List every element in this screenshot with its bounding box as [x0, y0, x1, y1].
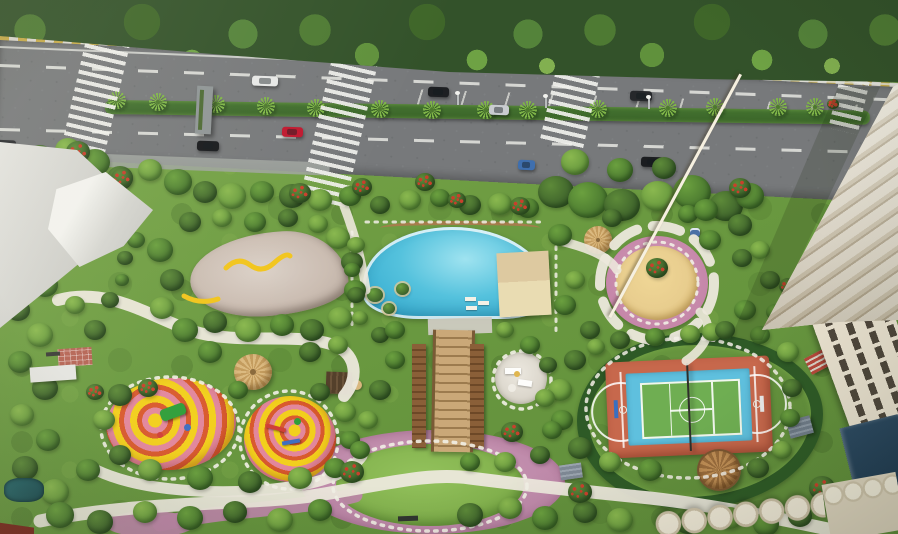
- tree: [554, 295, 576, 315]
- tree: [133, 501, 157, 523]
- tree: [565, 271, 585, 289]
- tree: [496, 322, 514, 338]
- tree: [193, 181, 217, 203]
- tree: [580, 321, 600, 339]
- vegetation-layer: [0, 0, 898, 534]
- tree: [76, 459, 100, 481]
- tree: [610, 331, 630, 349]
- tree: [728, 214, 752, 236]
- tree: [179, 212, 201, 232]
- tree: [109, 445, 131, 465]
- tree: [36, 429, 60, 451]
- flowering-tree: [827, 99, 839, 110]
- tree: [645, 328, 665, 346]
- tree: [308, 189, 332, 211]
- tree: [328, 336, 348, 354]
- tree: [41, 479, 69, 504]
- tree: [777, 342, 799, 362]
- tree: [308, 215, 328, 233]
- tree: [599, 452, 621, 472]
- tree: [568, 437, 592, 459]
- aerial-render-scene: [0, 0, 898, 534]
- tree: [228, 381, 248, 399]
- tree: [494, 452, 516, 472]
- tree: [385, 351, 405, 369]
- tree: [587, 339, 605, 355]
- tree: [150, 297, 174, 319]
- tree: [138, 459, 162, 481]
- water-feature: [4, 478, 44, 502]
- tree: [694, 199, 718, 221]
- tree: [8, 351, 32, 373]
- tree: [235, 318, 261, 341]
- flowering-tree: [510, 197, 530, 215]
- tree: [358, 411, 378, 429]
- tree: [561, 149, 589, 174]
- white-pergola: [30, 364, 77, 382]
- tree: [370, 196, 390, 214]
- tree: [652, 157, 676, 179]
- tree: [87, 510, 113, 533]
- tree: [46, 502, 74, 527]
- tree: [430, 189, 450, 207]
- tree: [238, 471, 262, 493]
- tree: [218, 183, 246, 208]
- tree: [498, 497, 522, 519]
- tree: [568, 182, 608, 218]
- tree: [548, 224, 572, 246]
- tree: [680, 325, 700, 343]
- tree: [344, 263, 360, 277]
- flowering-tree: [568, 481, 592, 503]
- tree: [308, 499, 332, 521]
- tree: [160, 269, 184, 291]
- tree: [532, 506, 558, 529]
- tree: [278, 209, 298, 227]
- tree: [267, 508, 293, 531]
- tree: [369, 380, 391, 400]
- flowering-tree: [352, 178, 372, 196]
- flowering-tree: [415, 173, 435, 191]
- tree: [747, 458, 769, 478]
- feature-wall: [195, 86, 213, 135]
- tree: [101, 292, 119, 308]
- tree: [300, 319, 324, 341]
- tree: [334, 402, 356, 422]
- tree: [535, 389, 555, 407]
- tree: [715, 321, 735, 339]
- tree: [84, 320, 106, 340]
- tree: [542, 421, 562, 439]
- flowering-tree: [729, 178, 751, 198]
- tree: [115, 274, 129, 287]
- tree: [108, 384, 132, 406]
- flowering-tree: [501, 422, 523, 442]
- tree: [638, 459, 662, 481]
- tree: [385, 321, 405, 339]
- tree: [520, 336, 540, 354]
- tree: [187, 466, 213, 489]
- tree: [760, 271, 780, 289]
- tree: [573, 501, 597, 523]
- tree: [147, 238, 173, 261]
- tree: [488, 193, 512, 215]
- tree: [203, 311, 227, 333]
- flowering-tree: [448, 192, 466, 208]
- tree: [164, 169, 192, 194]
- tree: [172, 318, 198, 341]
- tree: [607, 158, 633, 181]
- tree: [350, 441, 370, 459]
- tree: [399, 190, 421, 210]
- tree: [530, 446, 550, 464]
- tree: [12, 456, 38, 479]
- tree: [288, 467, 312, 489]
- tree: [299, 342, 321, 362]
- tree: [460, 453, 480, 471]
- tree: [699, 230, 721, 250]
- tree: [564, 350, 586, 370]
- tree: [782, 379, 802, 397]
- tree: [223, 501, 247, 523]
- tree: [328, 307, 352, 329]
- tree: [457, 503, 483, 526]
- tree: [602, 209, 622, 227]
- tree: [607, 508, 633, 531]
- flowering-tree: [289, 183, 311, 203]
- tree: [347, 237, 365, 253]
- tree: [310, 383, 330, 401]
- tree: [138, 159, 162, 181]
- tree: [177, 506, 203, 529]
- tree: [270, 314, 294, 336]
- tree: [65, 296, 85, 314]
- flowering-tree: [86, 384, 104, 400]
- tree: [27, 323, 53, 346]
- tree: [772, 441, 792, 459]
- tree: [539, 357, 557, 373]
- tree: [10, 404, 34, 426]
- tree: [212, 209, 232, 227]
- tree: [780, 409, 800, 427]
- tree: [250, 181, 274, 203]
- tree: [732, 249, 752, 267]
- tree: [244, 212, 266, 232]
- flowering-tree: [646, 258, 668, 278]
- tree: [750, 241, 770, 259]
- flowering-tree: [138, 379, 158, 397]
- flowering-tree: [340, 461, 364, 483]
- tree: [117, 251, 133, 265]
- tree: [198, 341, 222, 363]
- tree: [93, 410, 115, 430]
- tree: [352, 311, 368, 325]
- tree: [734, 300, 756, 320]
- tree: [347, 287, 365, 303]
